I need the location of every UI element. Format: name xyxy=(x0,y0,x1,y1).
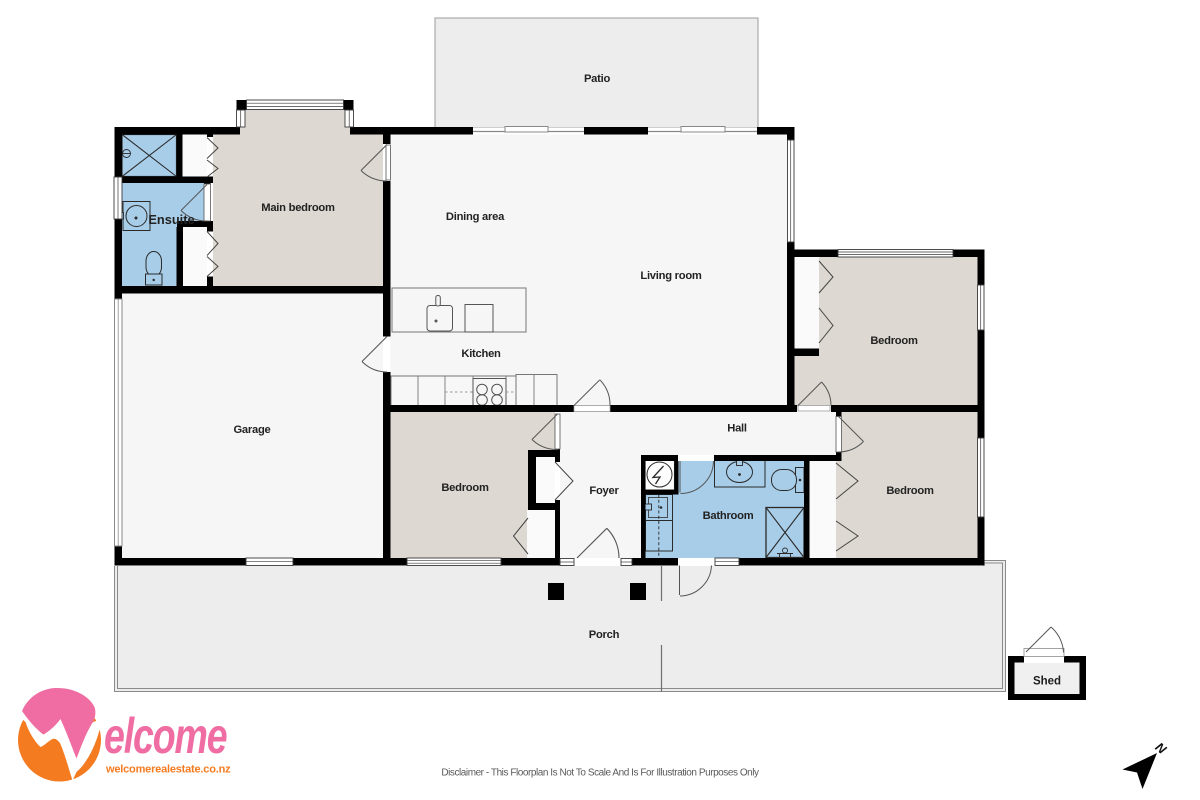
svg-text:Bedroom: Bedroom xyxy=(870,335,918,347)
svg-text:Bedroom: Bedroom xyxy=(441,482,489,494)
svg-text:Hall: Hall xyxy=(727,423,747,435)
svg-text:Porch: Porch xyxy=(589,629,620,641)
svg-text:Kitchen: Kitchen xyxy=(461,348,501,360)
svg-text:Patio: Patio xyxy=(584,73,611,85)
svg-text:Living room: Living room xyxy=(640,270,702,282)
svg-text:Bathroom: Bathroom xyxy=(703,510,754,522)
svg-text:Disclaimer - This Floorplan Is: Disclaimer - This Floorplan Is Not To Sc… xyxy=(441,768,759,779)
svg-text:Main bedroom: Main bedroom xyxy=(261,202,335,214)
svg-text:Garage: Garage xyxy=(233,424,270,436)
svg-text:Bedroom: Bedroom xyxy=(886,485,934,497)
svg-text:Ensuite: Ensuite xyxy=(148,212,194,227)
svg-text:Foyer: Foyer xyxy=(589,485,619,497)
svg-text:elcome: elcome xyxy=(104,709,227,764)
svg-text:welcomerealestate.co.nz: welcomerealestate.co.nz xyxy=(105,764,231,776)
svg-text:Shed: Shed xyxy=(1033,676,1061,688)
svg-text:Dining area: Dining area xyxy=(446,211,505,223)
